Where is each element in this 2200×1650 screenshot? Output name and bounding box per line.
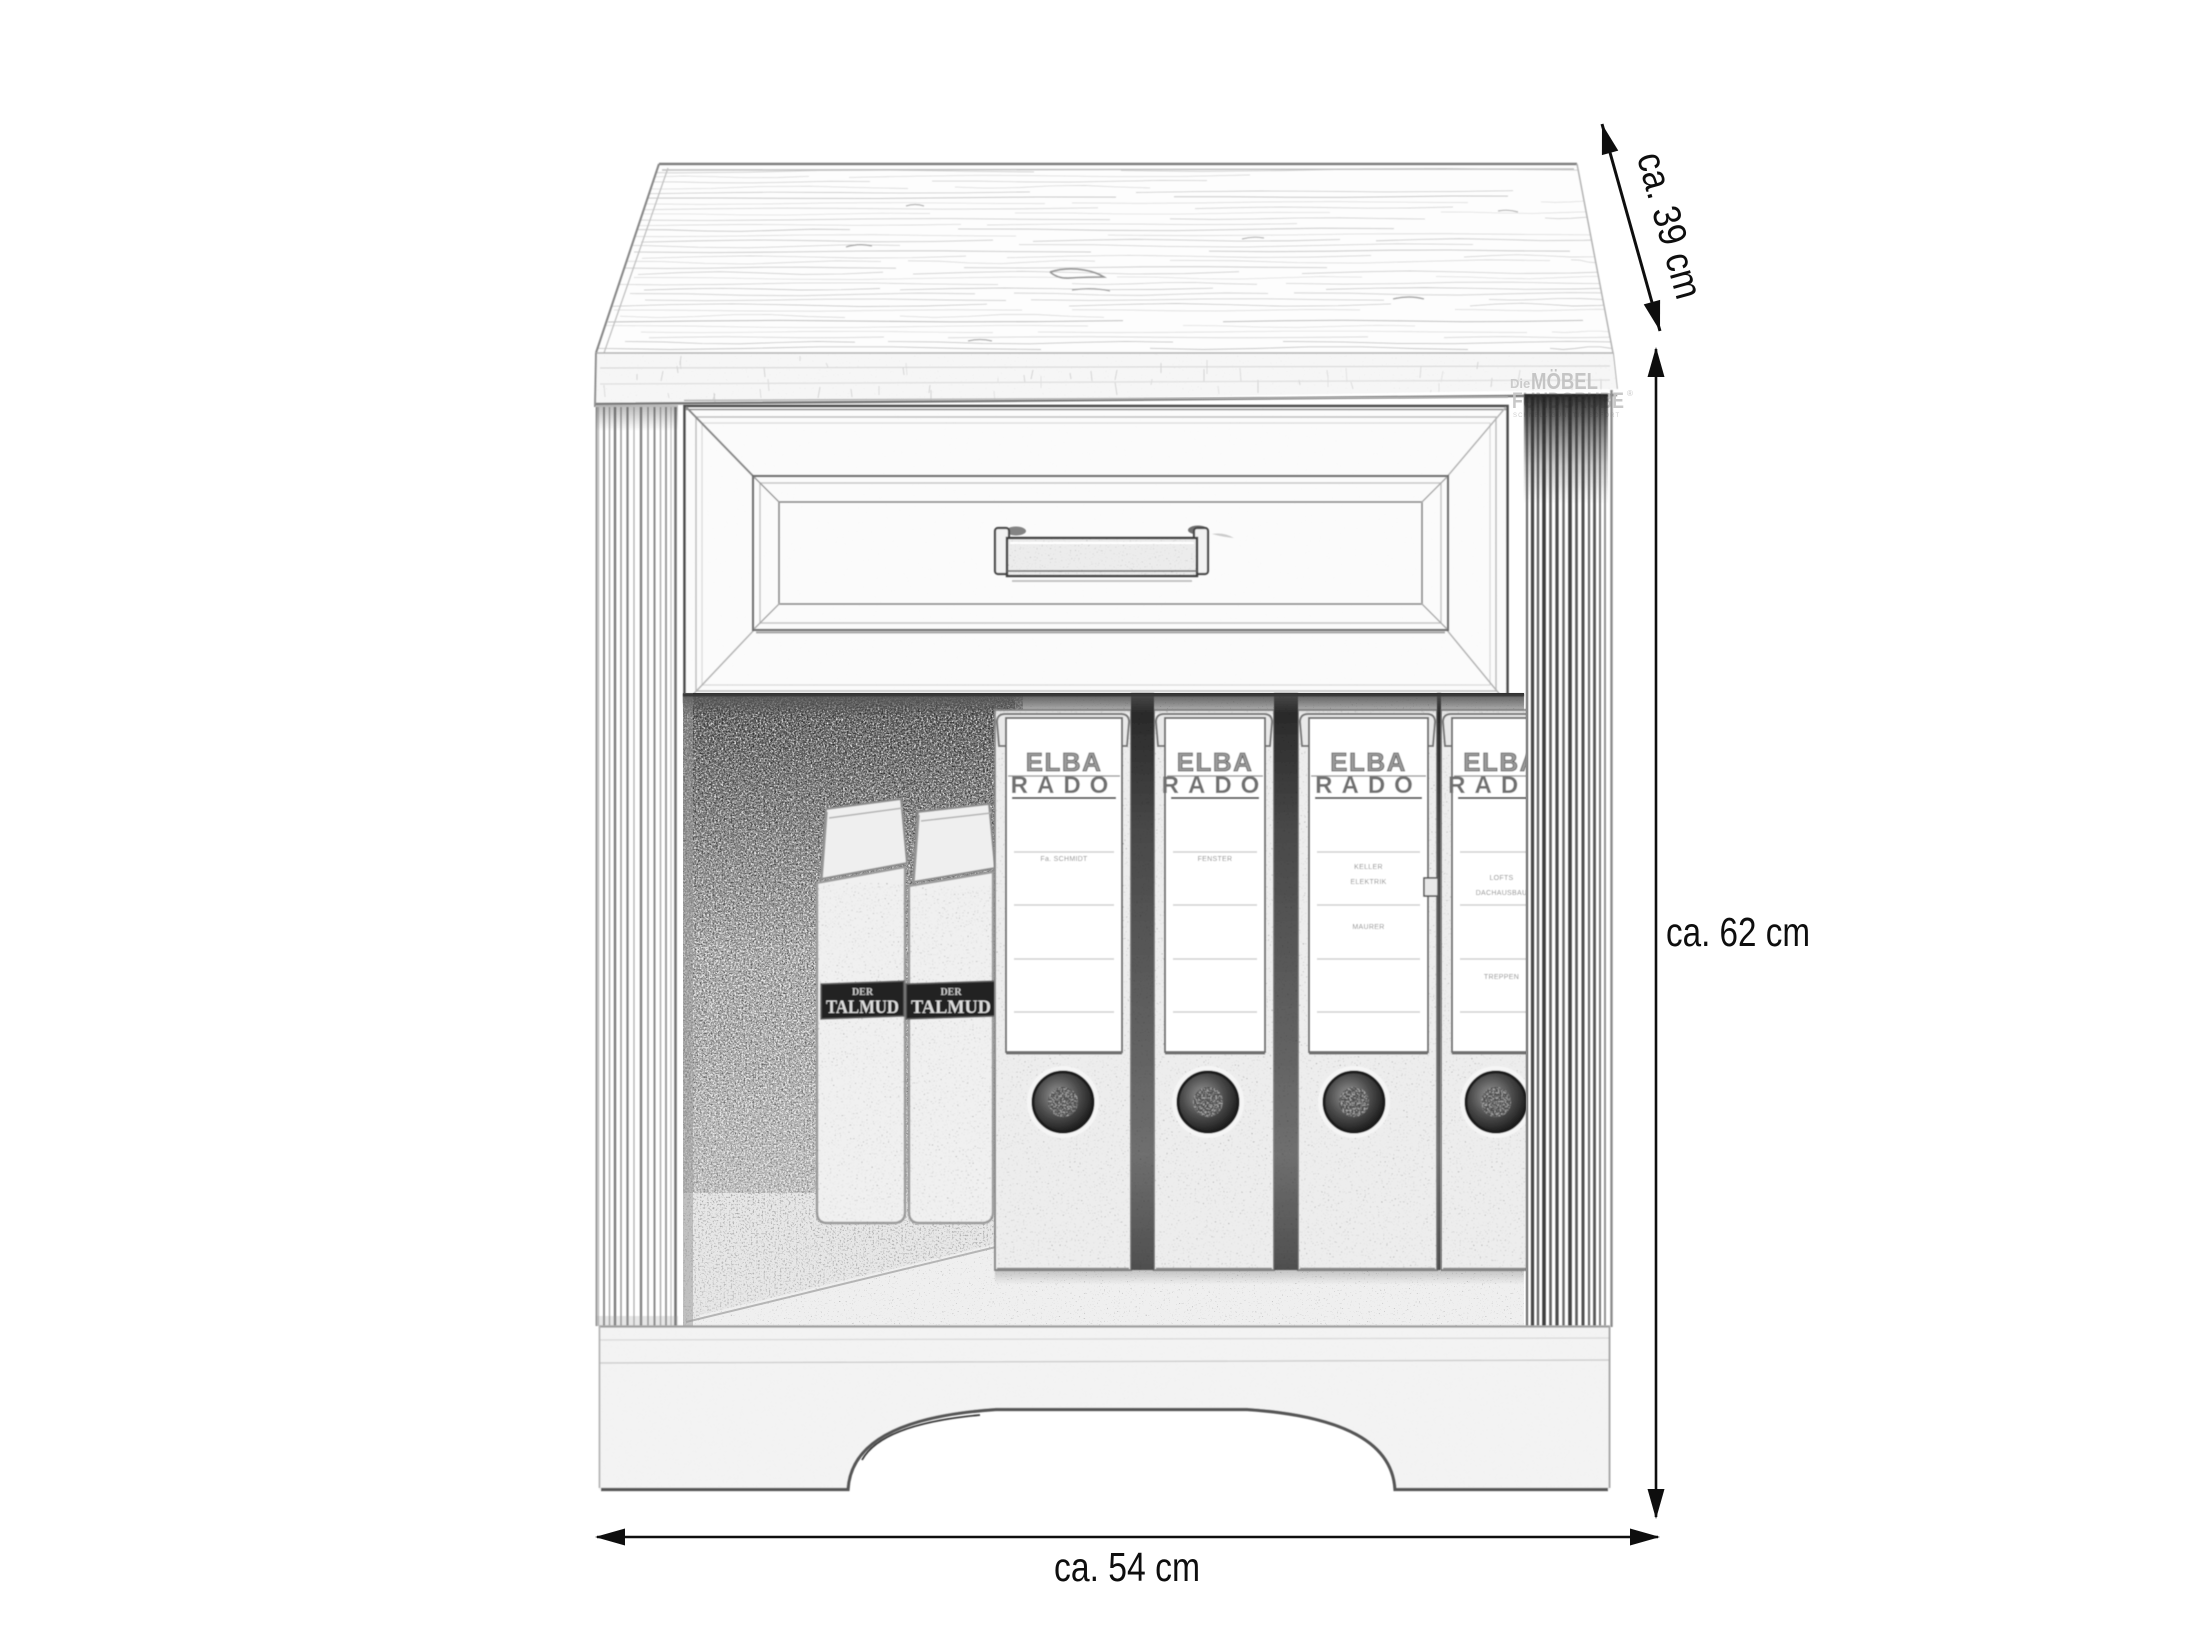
svg-text:ca. 62 cm: ca. 62 cm (1666, 909, 1810, 955)
svg-text:®: ® (1627, 389, 1633, 398)
svg-text:KELLER: KELLER (1354, 864, 1383, 871)
svg-text:FENSTER: FENSTER (1198, 856, 1233, 863)
svg-text:LOFTS: LOFTS (1489, 875, 1513, 882)
svg-text:TREPPEN: TREPPEN (1484, 974, 1519, 981)
svg-text:ca. 54 cm: ca. 54 cm (1054, 1544, 1200, 1590)
svg-text:TALMUD: TALMUD (826, 997, 899, 1018)
svg-text:ELEKTRIK: ELEKTRIK (1350, 879, 1386, 886)
svg-text:MAURER: MAURER (1352, 924, 1384, 931)
svg-text:DACHAUSBAU: DACHAUSBAU (1476, 890, 1528, 897)
svg-text:TALMUD: TALMUD (911, 997, 991, 1018)
svg-text:Fa. SCHMIDT: Fa. SCHMIDT (1040, 856, 1088, 863)
